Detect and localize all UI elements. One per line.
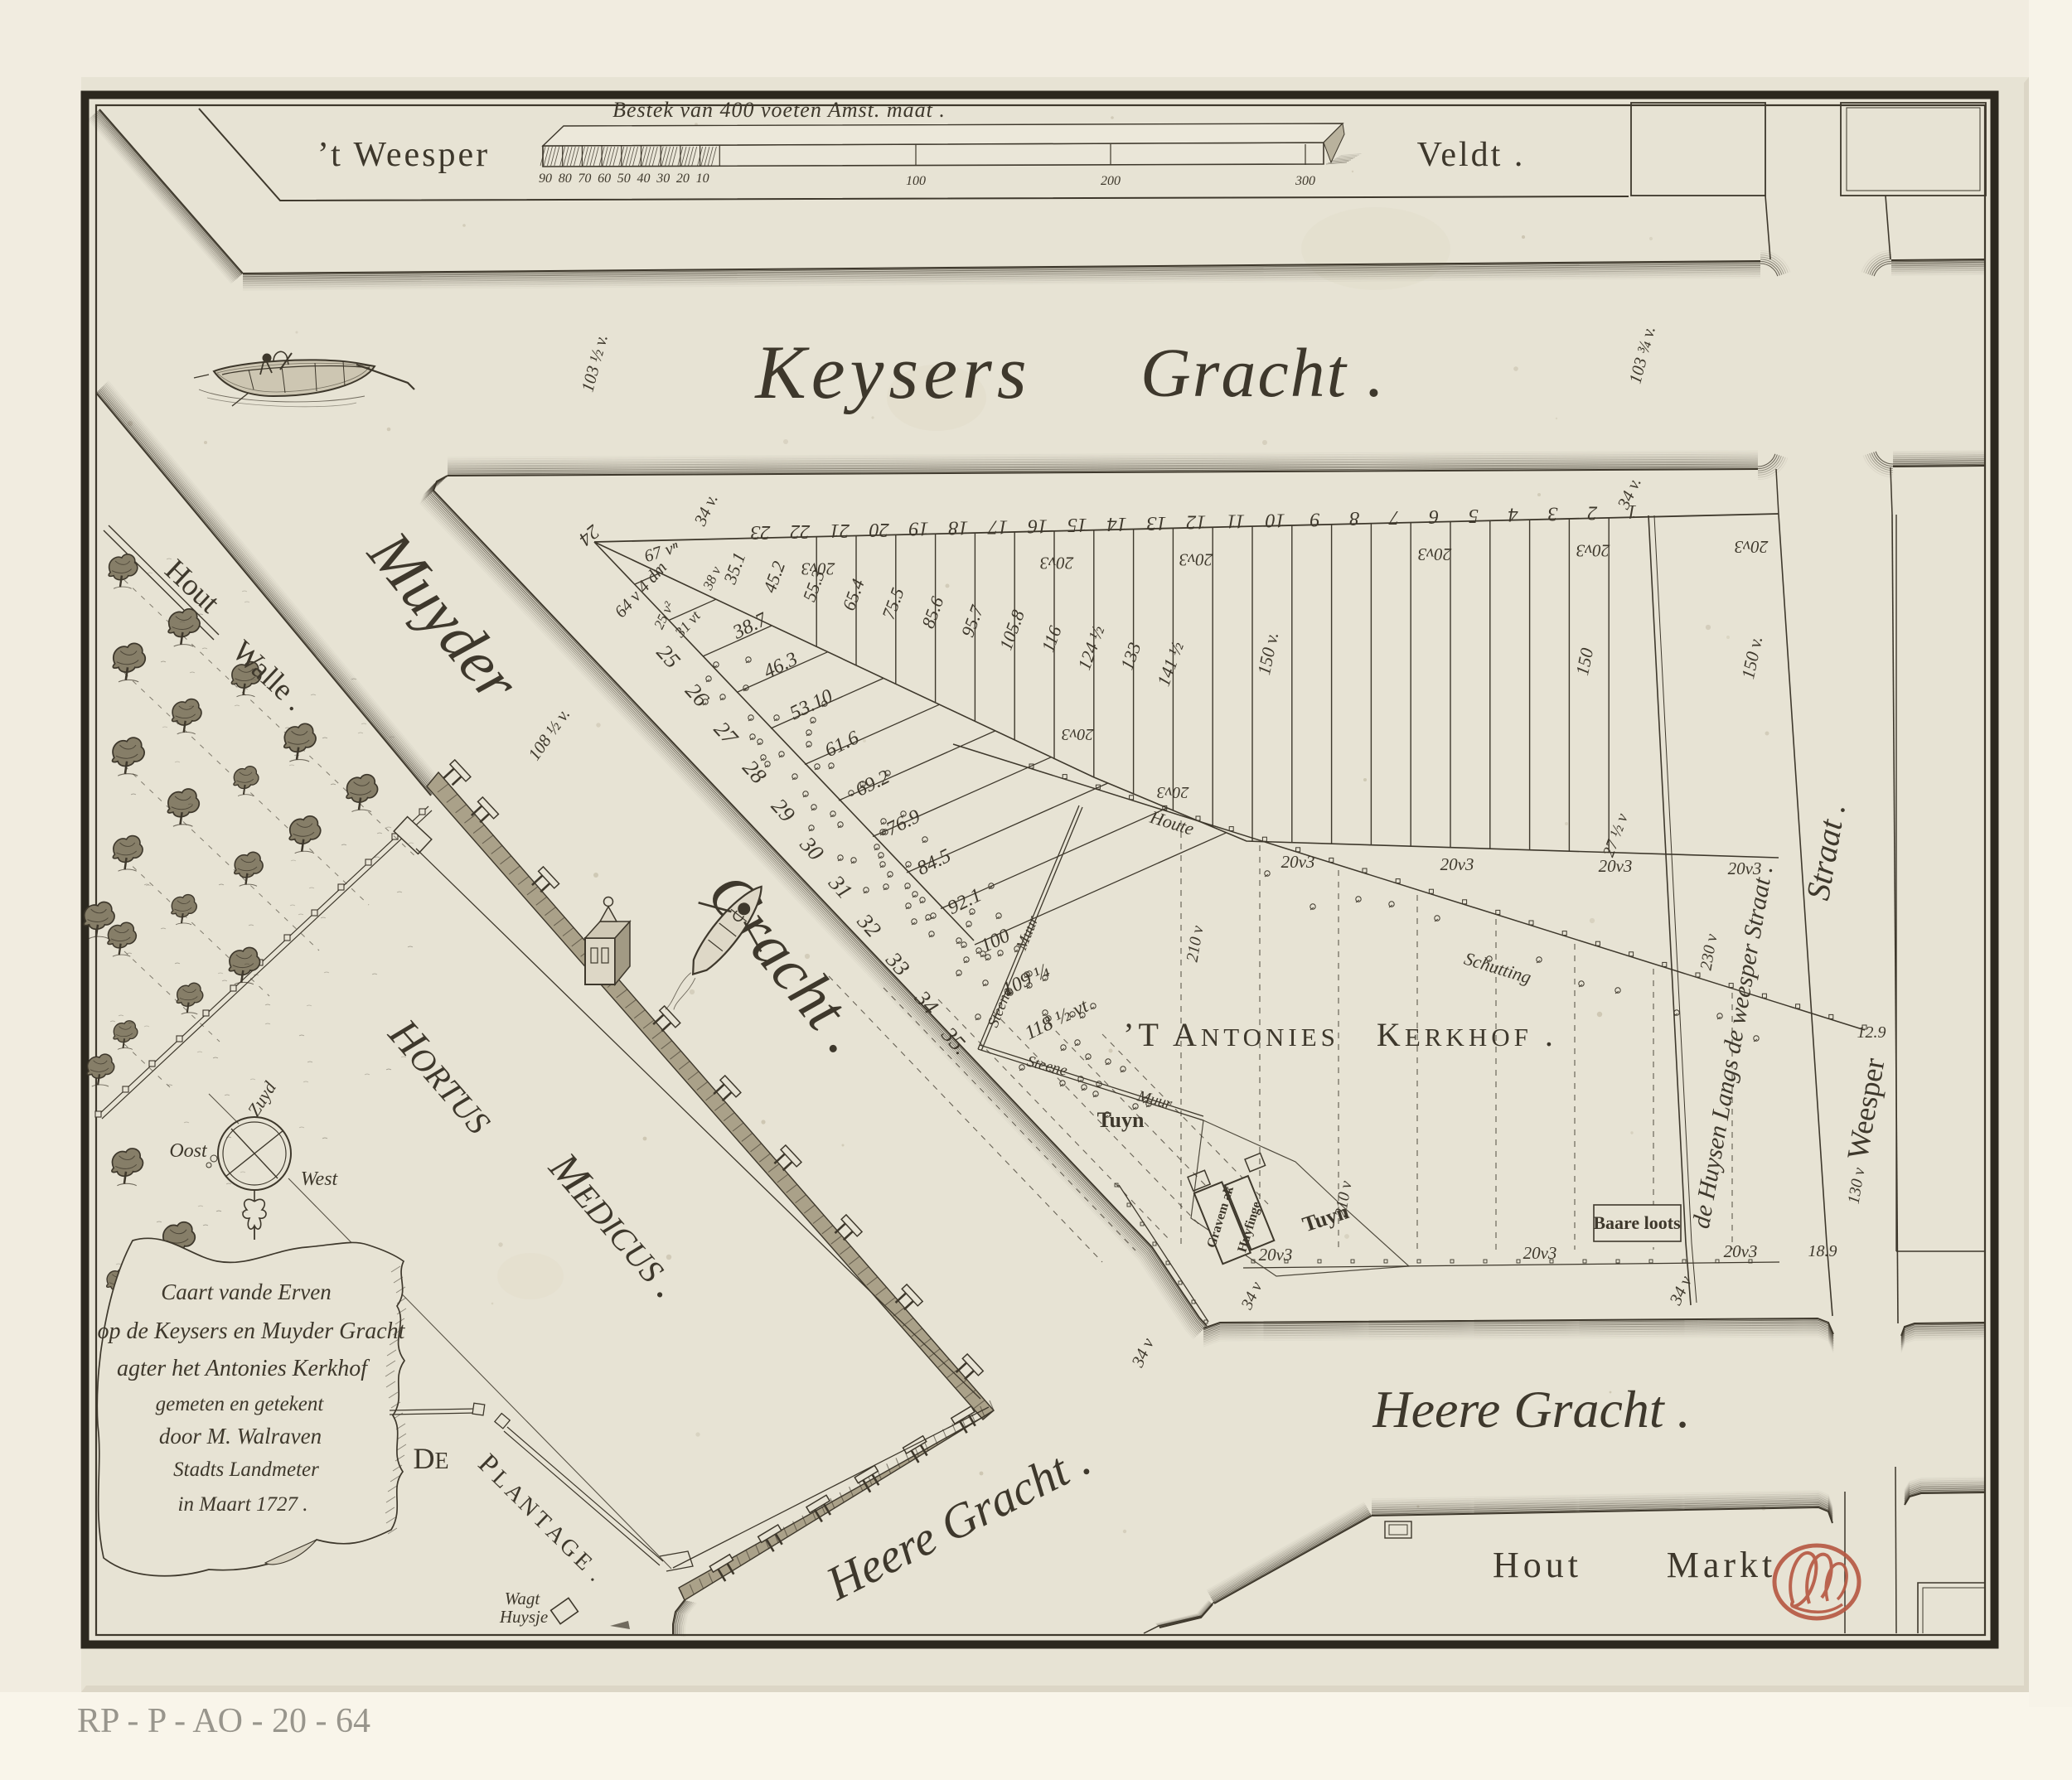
svg-text:Gracht .: Gracht .	[1140, 335, 1386, 412]
svg-text:100: 100	[906, 174, 926, 188]
svg-text:Wagt: Wagt	[505, 1589, 541, 1608]
svg-text:Keysers: Keysers	[753, 330, 1031, 414]
svg-text:22: 22	[790, 520, 810, 542]
svg-text:RP - P - AO - 20 - 64: RP - P - AO - 20 - 64	[77, 1702, 370, 1740]
svg-text:23: 23	[750, 521, 770, 543]
svg-text:Stadts Landmeter: Stadts Landmeter	[173, 1458, 319, 1481]
svg-text:Huysje: Huysje	[499, 1607, 548, 1627]
svg-text:3: 3	[1547, 503, 1558, 525]
svg-text:20v3: 20v3	[1735, 537, 1769, 557]
svg-text:4: 4	[1508, 504, 1518, 525]
svg-text:20v3: 20v3	[1259, 1245, 1293, 1265]
svg-text:14: 14	[1107, 513, 1127, 534]
svg-text:2: 2	[1587, 501, 1597, 523]
svg-text:16: 16	[1028, 515, 1048, 536]
svg-text:11: 11	[1227, 510, 1245, 532]
svg-text:20v3: 20v3	[1724, 1241, 1758, 1261]
svg-text:17: 17	[987, 515, 1008, 537]
svg-text:90: 90	[539, 172, 552, 186]
svg-text:20v3: 20v3	[1418, 544, 1452, 564]
svg-text:19: 19	[909, 518, 929, 539]
svg-text:Heere Gracht .: Heere Gracht .	[1372, 1380, 1690, 1439]
svg-text:20v3: 20v3	[1157, 783, 1189, 801]
svg-text:8: 8	[1349, 507, 1359, 529]
svg-text:300: 300	[1295, 174, 1315, 188]
svg-text:Markt: Markt	[1667, 1545, 1777, 1585]
svg-text:door M. Walraven: door M. Walraven	[159, 1424, 322, 1449]
svg-text:70: 70	[578, 172, 591, 186]
svg-text:20v3: 20v3	[1728, 859, 1762, 878]
svg-text:20v3: 20v3	[1576, 540, 1610, 560]
svg-text:Baare loots: Baare loots	[1593, 1212, 1681, 1233]
svg-text:80: 80	[559, 172, 572, 186]
svg-text:Veldt .: Veldt .	[1417, 136, 1526, 174]
svg-text:60: 60	[598, 172, 611, 186]
svg-text:10: 10	[1266, 509, 1285, 530]
svg-text:15: 15	[1067, 514, 1087, 535]
svg-text:Tuyn: Tuyn	[1097, 1108, 1145, 1132]
svg-text:5: 5	[1469, 505, 1479, 526]
svg-text:20v3: 20v3	[1040, 554, 1074, 573]
svg-text:10: 10	[696, 172, 709, 186]
svg-text:40: 40	[637, 172, 651, 186]
svg-text:op de Keysers en Muyder Gracht: op de Keysers en Muyder Gracht	[98, 1318, 406, 1344]
svg-text:Hout: Hout	[1493, 1545, 1582, 1585]
svg-text:West: West	[301, 1168, 339, 1190]
svg-text:20v3: 20v3	[1281, 852, 1315, 872]
svg-text:20: 20	[869, 519, 889, 540]
svg-text:in Maart 1727 .: in Maart 1727 .	[178, 1493, 308, 1516]
svg-text:20v3: 20v3	[1062, 725, 1094, 743]
svg-text:21: 21	[830, 520, 850, 541]
svg-text:13: 13	[1146, 512, 1166, 534]
svg-text:gemeten en getekent: gemeten en getekent	[156, 1393, 325, 1415]
svg-text:Caart vande Erven: Caart vande Erven	[161, 1279, 331, 1304]
svg-text:7: 7	[1388, 506, 1399, 528]
svg-text:20: 20	[676, 172, 690, 186]
svg-text:18: 18	[948, 517, 968, 539]
svg-text:20v3: 20v3	[1179, 550, 1213, 570]
svg-text:Oost: Oost	[169, 1140, 208, 1162]
svg-text:200: 200	[1101, 174, 1121, 188]
svg-text:18.9: 18.9	[1808, 1242, 1837, 1260]
svg-text:50: 50	[617, 172, 631, 186]
svg-text:30: 30	[656, 172, 670, 186]
svg-text:12: 12	[1186, 511, 1206, 533]
svg-text:9: 9	[1310, 508, 1320, 530]
svg-text:agter het Antonies Kerkhof: agter het Antonies Kerkhof	[117, 1356, 370, 1381]
svg-text:Bestek van 400 voeten Amst: Bestek van 400 voeten Amst. maat .	[612, 98, 946, 122]
svg-text:’t Weesper: ’t Weesper	[317, 136, 490, 174]
svg-text:20v3: 20v3	[1440, 854, 1474, 874]
svg-text:6: 6	[1429, 505, 1439, 527]
svg-text:12.9: 12.9	[1857, 1023, 1886, 1042]
